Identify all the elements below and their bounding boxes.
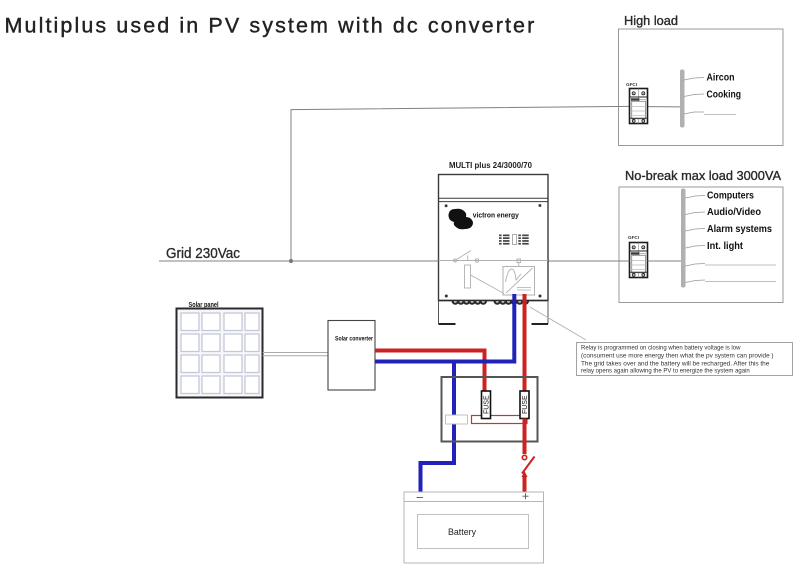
- svg-text:Grid 230Vac: Grid 230Vac: [166, 246, 240, 262]
- svg-text:Computers: Computers: [707, 190, 754, 202]
- svg-text:Cooking: Cooking: [707, 89, 742, 101]
- svg-text:Aircon: Aircon: [707, 72, 735, 84]
- svg-text:Solar converter: Solar converter: [335, 336, 373, 343]
- svg-text:No-break max load 3000VA: No-break max load 3000VA: [625, 168, 781, 183]
- svg-text:Multiplus used in PV system wi: Multiplus used in PV system with dc conv…: [5, 14, 537, 38]
- svg-text:victron energy: victron energy: [473, 211, 520, 220]
- svg-text:FUSE: FUSE: [484, 395, 491, 414]
- svg-text:MULTI plus 24/3000/70: MULTI plus 24/3000/70: [449, 161, 533, 170]
- svg-text:relay opens again allowing the: relay opens again allowing the PV to ene…: [581, 369, 750, 375]
- svg-text:Battery: Battery: [448, 527, 476, 537]
- svg-text:GFCI: GFCI: [626, 82, 637, 87]
- svg-text:Int. light: Int. light: [707, 240, 743, 252]
- svg-text:Alarm systems: Alarm systems: [707, 223, 772, 235]
- svg-text:(consument use more energy the: (consument use more energy then what the…: [581, 353, 774, 360]
- svg-text:GFCI: GFCI: [628, 235, 639, 240]
- svg-text:The grid takes over and the ba: The grid takes over and the battery will…: [581, 361, 770, 368]
- svg-text:High load: High load: [624, 14, 678, 28]
- svg-text:FUSE: FUSE: [522, 395, 529, 414]
- svg-text:Relay is programmed on closing: Relay is programmed on closing when batt…: [581, 346, 741, 352]
- svg-text:Audio/Video: Audio/Video: [707, 206, 761, 218]
